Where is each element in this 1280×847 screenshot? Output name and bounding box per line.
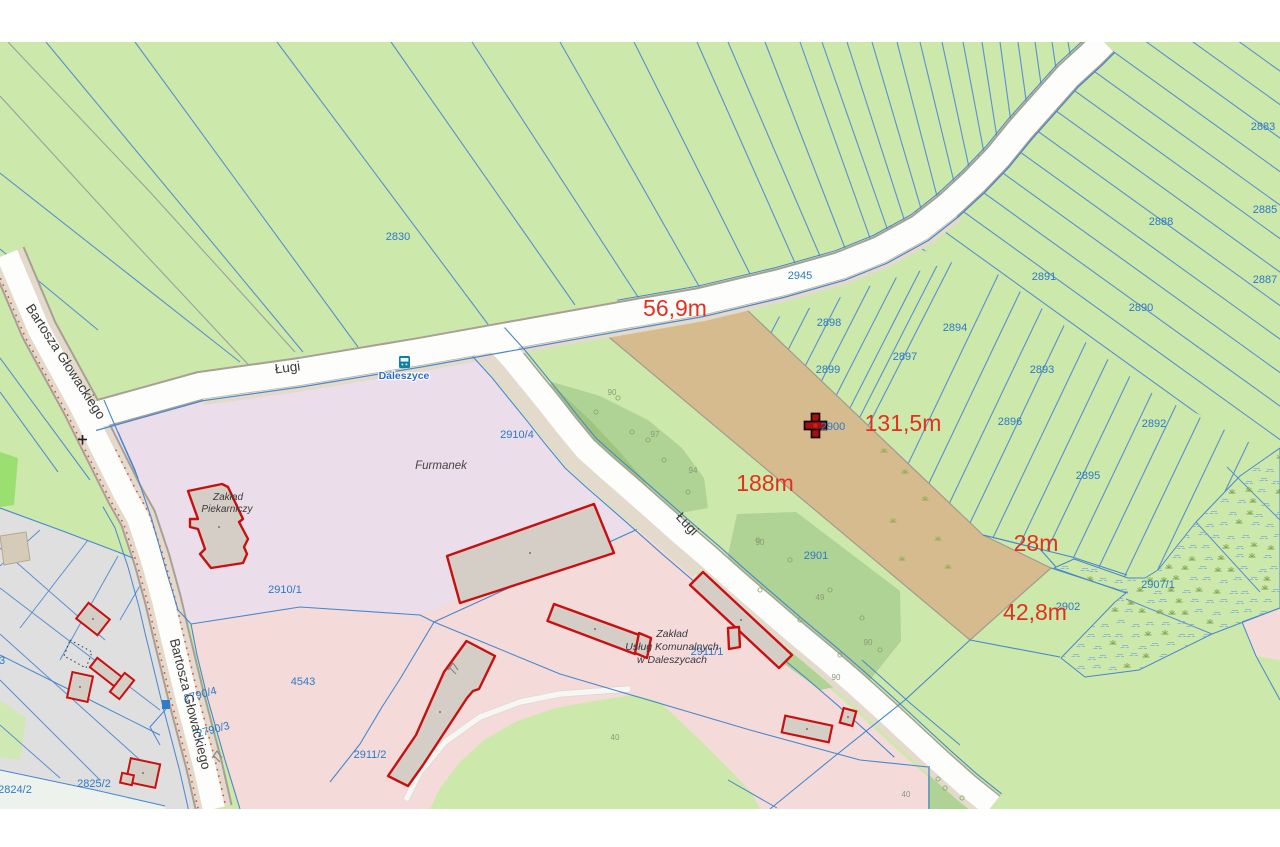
svg-text:2894: 2894 [943,322,967,334]
svg-text:2901: 2901 [804,550,828,562]
svg-text:3: 3 [0,655,5,667]
svg-text:49: 49 [816,593,825,602]
svg-text:2897: 2897 [893,351,917,363]
svg-text:Zakład: Zakład [212,492,243,503]
svg-text:2824/2: 2824/2 [0,784,32,796]
svg-text:2899: 2899 [816,364,840,376]
svg-text:90: 90 [608,388,617,397]
svg-text:2910/1: 2910/1 [268,584,302,596]
svg-text:2887: 2887 [1253,274,1277,286]
svg-text:97: 97 [651,430,660,439]
svg-text:90: 90 [864,638,873,647]
svg-text:Daleszyce: Daleszyce [379,370,430,382]
svg-text:2896: 2896 [998,416,1022,428]
svg-text:2891: 2891 [1032,271,1056,283]
svg-text:2895: 2895 [1076,470,1100,482]
svg-text:Usług Komunalnych: Usług Komunalnych [625,641,719,653]
svg-text:Piekarniczy: Piekarniczy [201,504,253,515]
svg-text:2885: 2885 [1253,204,1277,216]
svg-text:56,9m: 56,9m [643,295,707,321]
svg-text:2890: 2890 [1129,302,1153,314]
svg-text:2830: 2830 [386,231,410,243]
svg-text:40: 40 [902,790,911,799]
svg-text:2911/2: 2911/2 [354,749,387,761]
svg-text:2892: 2892 [1142,418,1166,430]
svg-text:131,5m: 131,5m [865,410,942,436]
svg-text:2945: 2945 [788,270,812,282]
svg-text:4543: 4543 [291,676,315,688]
svg-text:2888: 2888 [1149,216,1173,228]
svg-text:188m: 188m [736,470,794,496]
svg-text:28m: 28m [1014,530,1059,556]
svg-text:2825/2: 2825/2 [77,778,111,790]
svg-text:2900: 2900 [821,421,845,433]
svg-text:w Daleszycach: w Daleszycach [637,654,707,666]
svg-text:2910/4: 2910/4 [500,429,534,441]
svg-text:90: 90 [832,673,841,682]
svg-text:94: 94 [689,466,698,475]
svg-text:90: 90 [756,538,765,547]
svg-text:Zakład: Zakład [655,628,689,640]
svg-text:42,8m: 42,8m [1003,599,1067,625]
svg-text:2898: 2898 [817,317,841,329]
svg-text:40: 40 [611,733,620,742]
svg-text:2883: 2883 [1251,121,1275,133]
svg-text:Ługi: Ługi [274,359,301,377]
svg-text:Furmanek: Furmanek [415,460,468,472]
svg-text:2893: 2893 [1030,364,1054,376]
svg-text:2907/1: 2907/1 [1141,579,1175,591]
